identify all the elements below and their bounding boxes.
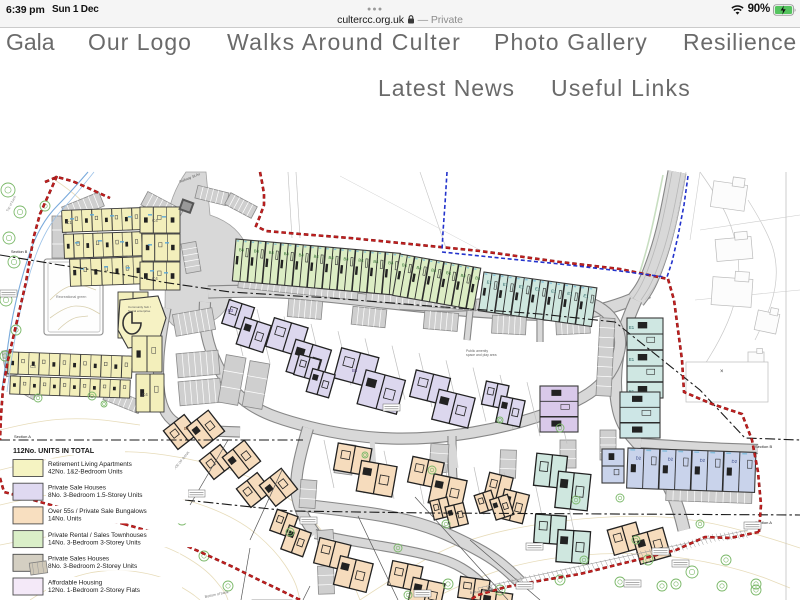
svg-text:Retirement Living Apartments: Retirement Living Apartments <box>48 461 132 468</box>
svg-text:Section A: Section A <box>14 434 31 439</box>
svg-text:Private Rental / Sales Townhou: Private Rental / Sales Townhouses <box>48 532 147 539</box>
svg-text:×: × <box>720 369 724 375</box>
svg-text:B1: B1 <box>184 426 190 431</box>
svg-text:8No. 3-Bedroom 1.5-Storey Unit: 8No. 3-Bedroom 1.5-Storey Units <box>48 492 142 499</box>
svg-text:Section B: Section B <box>755 444 772 449</box>
svg-text:Section B: Section B <box>11 250 28 254</box>
svg-text:42No. 1&2-Bedroom Units: 42No. 1&2-Bedroom Units <box>48 468 123 475</box>
svg-text:B3: B3 <box>352 368 358 373</box>
svg-text:Private Sale Houses: Private Sale Houses <box>48 485 106 492</box>
svg-text:Private Sales Houses: Private Sales Houses <box>48 556 109 563</box>
svg-text:C3: C3 <box>30 364 36 369</box>
svg-text:Recreational green: Recreational green <box>56 295 86 299</box>
svg-text:C4: C4 <box>142 392 148 397</box>
svg-text:14No. 3-Bedroom 3-Storey Units: 14No. 3-Bedroom 3-Storey Units <box>48 539 141 546</box>
svg-text:B3: B3 <box>228 308 234 313</box>
svg-text:D2: D2 <box>668 457 674 462</box>
svg-text:D2: D2 <box>700 458 706 463</box>
svg-text:12No. 1-Bedroom 2-Storey Flats: 12No. 1-Bedroom 2-Storey Flats <box>48 587 140 594</box>
svg-text:D2: D2 <box>732 459 738 464</box>
svg-text:D2: D2 <box>636 455 642 460</box>
svg-text:space and play area: space and play area <box>466 353 497 357</box>
svg-text:Social enterprise: Social enterprise <box>128 309 151 313</box>
svg-text:E1: E1 <box>629 357 635 362</box>
svg-text:8No. 3-Bedroom 2-Storey Units: 8No. 3-Bedroom 2-Storey Units <box>48 563 137 570</box>
svg-text:14No. Units: 14No. Units <box>48 516 81 523</box>
svg-text:C4: C4 <box>152 218 158 223</box>
svg-text:C1: C1 <box>66 220 72 225</box>
svg-text:E1: E1 <box>629 325 635 330</box>
svg-text:Over 55s / Private Sale Bungal: Over 55s / Private Sale Bungalows <box>48 508 147 515</box>
svg-text:Affordable Housing: Affordable Housing <box>48 579 103 586</box>
svg-text:112No. UNITS IN TOTAL: 112No. UNITS IN TOTAL <box>13 446 95 455</box>
